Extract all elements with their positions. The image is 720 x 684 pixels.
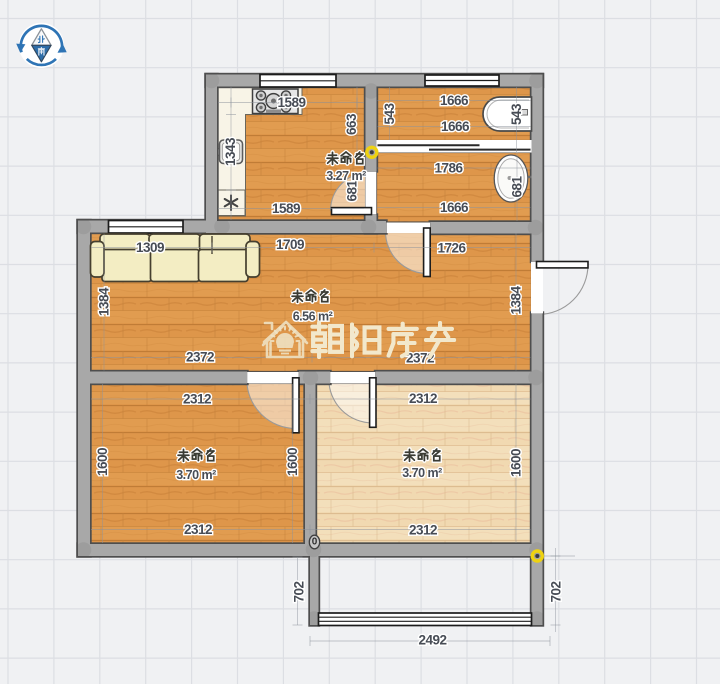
svg-text:681: 681 (510, 175, 525, 197)
svg-text:1309: 1309 (136, 240, 164, 255)
svg-text:3.70 m²: 3.70 m² (402, 466, 442, 480)
svg-text:702: 702 (549, 581, 564, 602)
svg-text:2492: 2492 (418, 633, 446, 648)
svg-text:1384: 1384 (509, 285, 524, 314)
svg-text:543: 543 (509, 103, 524, 125)
svg-text:543: 543 (382, 102, 397, 124)
svg-text:2312: 2312 (409, 523, 437, 538)
svg-text:2312: 2312 (184, 522, 212, 537)
svg-text:2312: 2312 (409, 391, 437, 406)
svg-text:1600: 1600 (95, 448, 110, 476)
svg-text:1786: 1786 (434, 161, 463, 176)
svg-text:1589: 1589 (272, 201, 300, 216)
svg-text:1666: 1666 (441, 119, 470, 134)
svg-text:702: 702 (292, 581, 307, 602)
svg-text:3.27 m²: 3.27 m² (326, 169, 366, 183)
svg-text:1343: 1343 (223, 137, 238, 166)
svg-text:2372: 2372 (186, 350, 214, 365)
svg-text:1709: 1709 (276, 237, 304, 252)
svg-text:663: 663 (344, 113, 359, 135)
svg-text:3.70 m²: 3.70 m² (176, 468, 216, 482)
svg-text:6.56 m²: 6.56 m² (293, 310, 333, 324)
svg-text:0: 0 (312, 537, 318, 548)
svg-text:1600: 1600 (509, 449, 524, 477)
svg-text:1384: 1384 (97, 287, 112, 316)
svg-text:1666: 1666 (440, 200, 469, 215)
svg-text:1726: 1726 (437, 241, 466, 256)
svg-text:2312: 2312 (183, 392, 211, 407)
svg-text:1666: 1666 (440, 93, 469, 108)
svg-text:1600: 1600 (285, 448, 300, 476)
svg-text:1589: 1589 (277, 95, 305, 110)
